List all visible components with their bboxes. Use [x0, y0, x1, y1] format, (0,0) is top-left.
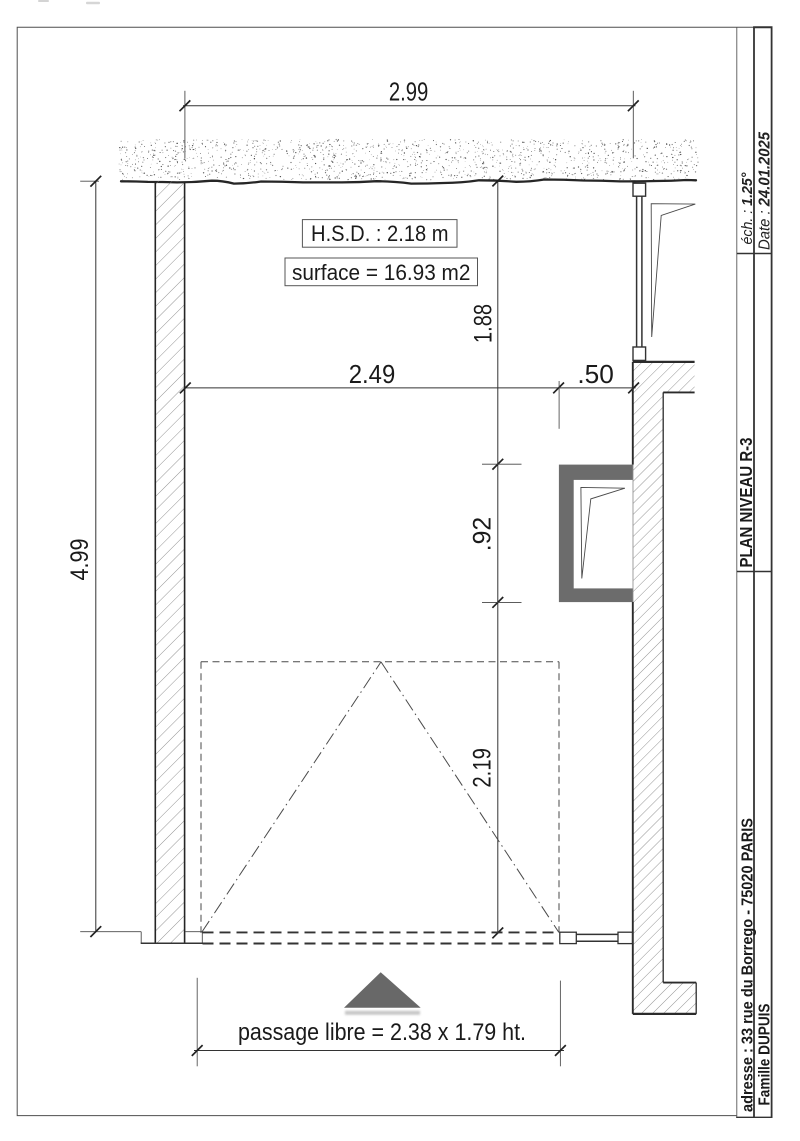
svg-text:2.49: 2.49 [349, 359, 396, 389]
svg-text:.92: .92 [469, 517, 497, 551]
svg-text:adresse : 33 rue du Borrego -: adresse : 33 rue du Borrego - 75020 PARI… [740, 818, 757, 1112]
svg-text:4.99: 4.99 [66, 539, 94, 581]
svg-text:2.99: 2.99 [389, 77, 429, 107]
svg-text:PLAN NIVEAU R-3: PLAN NIVEAU R-3 [736, 437, 756, 567]
svg-text:H.S.D. : 2.18 m: H.S.D. : 2.18 m [311, 221, 449, 246]
svg-text:surface = 16.93 m2: surface = 16.93 m2 [292, 260, 471, 285]
svg-text:Famille DUPUIS: Famille DUPUIS [756, 1003, 773, 1105]
svg-text:passage libre = 2.38 x 1.79 ht: passage libre = 2.38 x 1.79 ht. [238, 1019, 526, 1046]
svg-text:.50: .50 [577, 359, 614, 389]
svg-text:2.19: 2.19 [468, 748, 496, 788]
svg-text:1.88: 1.88 [469, 304, 497, 343]
svg-text:Date : 24.01.2025: Date : 24.01.2025 [756, 132, 773, 250]
svg-text:éch. : 1.25°: éch. : 1.25° [739, 172, 756, 245]
